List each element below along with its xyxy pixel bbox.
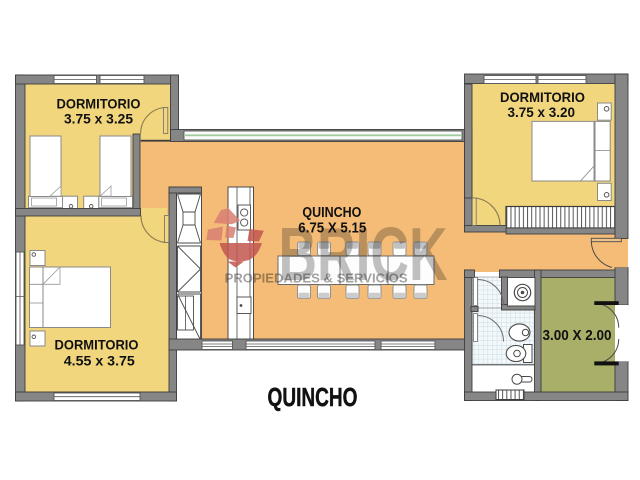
- svg-text:DORMITORIO: DORMITORIO: [55, 337, 139, 353]
- svg-text:PROPIEDADES & SERVICIOS: PROPIEDADES & SERVICIOS: [225, 270, 408, 285]
- svg-text:DORMITORIO: DORMITORIO: [500, 89, 585, 105]
- svg-text:3.75 x 3.25: 3.75 x 3.25: [64, 110, 133, 126]
- svg-text:QUINCHO: QUINCHO: [268, 382, 358, 412]
- svg-text:3.75 x 3.20: 3.75 x 3.20: [508, 104, 576, 120]
- svg-text:6.75 X 5.15: 6.75 X 5.15: [298, 220, 366, 236]
- svg-text:3.00 X 2.00: 3.00 X 2.00: [543, 327, 612, 344]
- svg-text:4.55 x 3.75: 4.55 x 3.75: [64, 352, 135, 368]
- svg-text:QUINCHO: QUINCHO: [302, 205, 361, 221]
- svg-text:DORMITORIO: DORMITORIO: [57, 95, 141, 111]
